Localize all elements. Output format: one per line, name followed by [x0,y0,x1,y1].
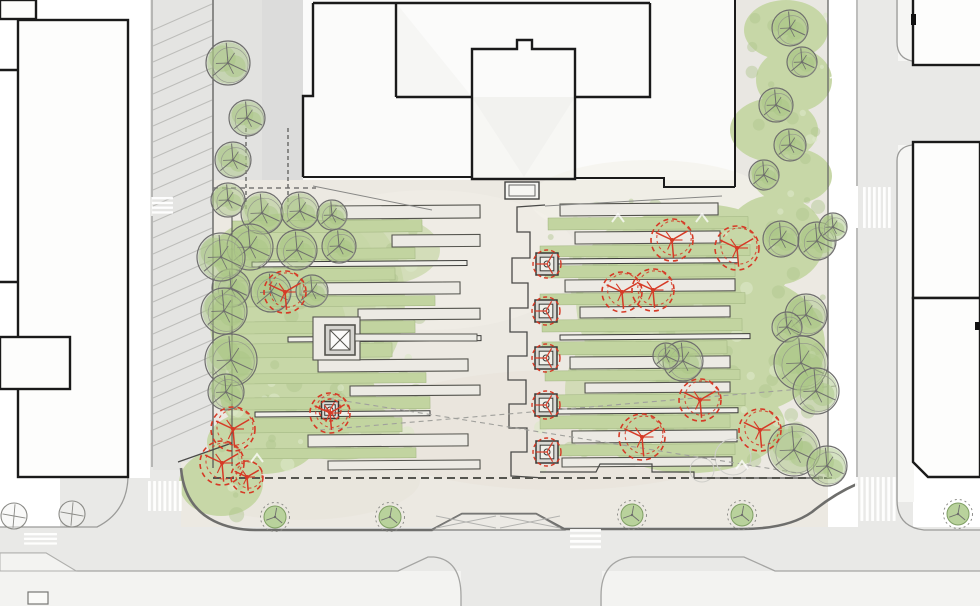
existing-tree [653,343,679,369]
existing-tree [277,230,317,270]
paving-terrace-strip [358,308,480,320]
lawn-mottle [270,360,279,369]
tree-planter [532,297,560,325]
lawn-mottle [823,13,828,18]
crosswalk-bar [152,207,173,209]
crosswalk-bar [866,477,869,521]
tree-trunk [261,212,264,215]
tree-trunk [793,449,796,452]
street-tree-trunk [274,516,276,518]
existing-tree [787,47,817,77]
tree-trunk [331,214,334,217]
crosswalk [24,533,57,545]
paving-terrace-strip [328,460,480,470]
fountain-bench-connector [355,334,477,341]
tree-trunk [665,355,668,358]
proposed-trunk [698,398,702,402]
tree-trunk [299,210,302,213]
tree-planter [532,344,560,372]
tree-trunk [227,199,230,202]
existing-tree [206,41,250,85]
proposed-trunk [283,290,287,294]
crosswalk-bar [878,187,881,228]
tree-trunk [826,465,829,468]
tree-trunk [789,144,792,147]
crosswalk-bar [174,481,177,511]
tree-trunk [223,310,226,313]
crosswalk-bar [163,481,166,511]
building-east-entry-mark [975,322,980,330]
crosswalk-bar [570,529,601,532]
tree-trunk [800,362,803,365]
lawn-terrace-strip [545,444,735,456]
tree-trunk [763,174,766,177]
tree-trunk [780,238,783,241]
crosswalk-bar [152,211,173,213]
crosswalk-bar [882,477,885,521]
existing-tree [215,142,251,178]
paving-terrace-strip [570,356,730,369]
crosswalk-bar [860,477,863,521]
tree-trunk [801,61,804,64]
tree-trunk [246,117,249,120]
paving-terrace-strip [318,359,468,372]
lawn-mottle [772,415,784,427]
lawn-terrace-strip [545,370,740,381]
existing-tree [281,192,319,230]
bench-strip [255,411,430,417]
lawn-mottle [280,457,294,471]
paving-terrace-strip [392,234,480,247]
lawn-mottle [777,208,783,214]
crosswalk-bar [169,481,172,511]
lawn-mottle [787,267,800,280]
tree-trunk [249,246,252,249]
lawn-mottle [298,439,303,444]
crosswalk-bar [868,187,871,228]
crosswalk-bar [855,477,858,521]
lawn-mottle [800,110,806,116]
lawn-terrace-strip [548,217,748,230]
existing-tree [229,100,265,136]
lawn-terrace-strip [238,448,416,459]
lawn-terrace-strip [540,245,750,257]
lawn-mottle [337,385,344,392]
lawn-mottle [753,119,765,131]
lawn-mottle [820,65,824,69]
lawn-mottle [768,81,775,88]
right-sidewalk [898,0,914,61]
tree-trunk [232,159,235,162]
crosswalk-bar [570,535,601,538]
proposed-trunk [735,246,739,250]
building-west-2 [18,20,128,477]
crosswalk-bar [570,546,601,549]
lawn-mottle [787,190,794,197]
street-tree-trunk [389,516,391,518]
left-parking-lane [153,0,213,470]
crosswalk-bar [887,477,890,521]
tree-trunk [230,359,233,362]
existing-tree [749,160,779,190]
crosswalk-bar [873,187,876,228]
paving-terrace-strip [560,203,718,216]
crosswalk-bar [24,538,57,540]
site-plan-drawing [0,0,980,606]
crosswalk-bar [148,481,151,511]
crosswalk-bar [883,187,886,228]
south-branch-street-surface [461,527,602,606]
crosswalk-bar [152,197,173,199]
lawn-terrace-strip [545,265,735,278]
lawn-mottle [740,406,747,413]
tree-trunk [296,249,299,252]
street-tree-trunk [957,513,959,515]
crosswalk-bar [871,477,874,521]
paving-terrace-strip [308,434,468,447]
lawn-mottle [805,134,815,144]
existing-tree [772,312,802,342]
crosswalk-bar [152,202,173,204]
tree-trunk [816,240,819,243]
tree-trunk [789,27,792,30]
crosswalk-bar [570,540,601,543]
building-east-1 [913,0,980,65]
crosswalk-bar [153,481,156,511]
lawn-mottle [750,13,761,24]
tree-trunk [311,290,314,293]
lawn-terrace-strip [238,373,426,384]
crosswalk-bar [24,533,57,535]
site-plan-canvas [0,0,980,606]
lawn-mass [179,450,263,516]
existing-tree [807,446,847,486]
existing-tree [772,10,808,46]
lawn-mottle [229,507,244,522]
proposed-trunk [328,411,332,415]
lawn-mottle [747,42,757,52]
building-west-wing [0,337,70,389]
building-east-2 [913,142,980,298]
tree-planter [532,391,560,419]
paving-terrace-strip [575,231,720,244]
tree-trunk [786,326,789,329]
bare-tree [59,501,85,527]
lawn-mottle [233,492,239,498]
building-east-entry-mark [911,14,916,25]
crosswalk-bar [158,481,161,511]
existing-tree [197,233,245,281]
proposed-trunk [651,288,655,292]
paving-terrace-strip [330,205,480,219]
right-sidewalk [898,145,914,502]
utility-box [28,592,48,604]
lawn-mottle [746,66,759,79]
lawn-mottle [811,200,825,214]
lawn-mottle [772,285,785,298]
existing-tree [793,368,839,414]
tree-planter [533,438,561,466]
tree-trunk [338,245,341,248]
existing-tree [211,183,245,217]
building-west-1 [0,0,36,19]
existing-tree [208,374,244,410]
building-east-3 [913,298,980,477]
lawn-mottle [268,435,276,443]
paving-terrace-strip [585,382,730,393]
bare-tree [1,503,27,529]
bench-strip [558,408,738,414]
crosswalk-bar [863,187,866,228]
crosswalk-bar [888,187,891,228]
tree-branch [786,363,801,364]
existing-tree [763,221,799,257]
tree-trunk [832,226,835,229]
crosswalk-bar [179,481,182,511]
lawn-mottle [804,197,811,204]
paving-terrace-strip [350,385,480,396]
crosswalk-bar [24,542,57,544]
street-tree-trunk [741,514,743,516]
proposed-trunk [670,238,674,242]
paving-terrace-strip [580,306,730,318]
tree-trunk [227,62,230,65]
tree-planter [533,250,561,278]
tree-trunk [225,391,228,394]
proposed-trunk [220,461,224,465]
existing-tree [774,129,806,161]
proposed-trunk [245,475,249,479]
proposed-trunk [640,435,644,439]
tree-trunk [815,390,818,393]
existing-tree [322,229,356,263]
bench-strip [560,334,750,340]
tree-trunk [805,314,808,317]
tree-trunk [775,104,778,107]
lawn-mottle [796,208,809,221]
street-tree-trunk [631,514,633,516]
lawn-terrace-strip [542,319,742,332]
crosswalk-bar [893,477,896,521]
tree-trunk [682,360,685,363]
proposed-trunk [620,290,624,294]
proposed-trunk [231,427,235,431]
existing-tree [819,213,847,241]
lawn-terrace-strip [540,394,745,407]
bench-strip [553,258,738,264]
lawn-mottle [747,372,755,380]
crosswalk-bar [877,477,880,521]
east-side-street-surface [898,61,980,145]
lawn-mottle [788,418,794,424]
existing-tree [317,200,347,230]
existing-tree [759,88,793,122]
existing-tree [201,288,247,334]
tree-trunk [220,256,223,259]
lawn-mottle [284,309,299,324]
proposed-trunk [758,428,762,432]
lawn-mottle [548,234,554,240]
